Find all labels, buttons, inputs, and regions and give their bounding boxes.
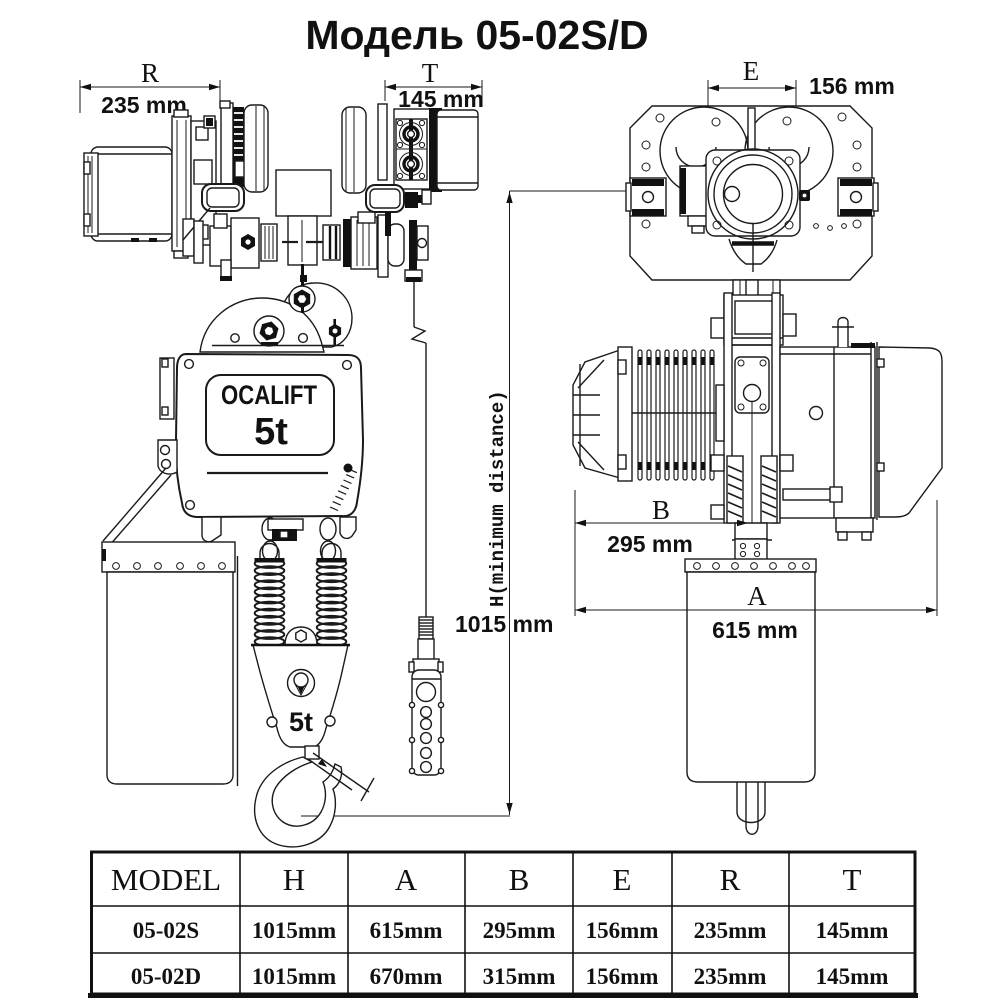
svg-text:1015mm: 1015mm xyxy=(252,964,336,989)
svg-text:295mm: 295mm xyxy=(483,918,556,943)
svg-text:T: T xyxy=(422,58,439,88)
svg-text:A: A xyxy=(747,581,767,611)
svg-text:315mm: 315mm xyxy=(483,964,556,989)
svg-text:Модель 05-02S/D: Модель 05-02S/D xyxy=(305,12,648,58)
svg-text:615 mm: 615 mm xyxy=(712,617,798,643)
svg-text:R: R xyxy=(141,58,159,88)
svg-text:B: B xyxy=(652,495,670,525)
svg-text:145mm: 145mm xyxy=(816,964,889,989)
svg-text:5t: 5t xyxy=(254,411,288,453)
svg-text:H: H xyxy=(283,862,305,897)
svg-text:E: E xyxy=(613,862,632,897)
svg-text:A: A xyxy=(395,862,418,897)
svg-text:235mm: 235mm xyxy=(694,964,767,989)
svg-text:R: R xyxy=(720,862,741,897)
svg-text:OCALIFT: OCALIFT xyxy=(221,380,317,410)
svg-text:05-02D: 05-02D xyxy=(131,964,201,989)
svg-text:B: B xyxy=(509,862,530,897)
svg-text:145mm: 145mm xyxy=(816,918,889,943)
svg-text:MODEL: MODEL xyxy=(111,862,221,897)
svg-text:5t: 5t xyxy=(289,707,313,737)
svg-text:156mm: 156mm xyxy=(586,918,659,943)
svg-text:235mm: 235mm xyxy=(694,918,767,943)
svg-text:295 mm: 295 mm xyxy=(607,531,693,557)
svg-text:156mm: 156mm xyxy=(586,964,659,989)
svg-text:615mm: 615mm xyxy=(370,918,443,943)
svg-text:1015mm: 1015mm xyxy=(252,918,336,943)
svg-text:1015 mm: 1015 mm xyxy=(455,611,553,637)
svg-text:H(minimum distance): H(minimum distance) xyxy=(487,390,509,607)
svg-text:T: T xyxy=(843,862,862,897)
svg-text:156 mm: 156 mm xyxy=(809,73,895,99)
svg-text:E: E xyxy=(743,56,760,86)
svg-text:05-02S: 05-02S xyxy=(133,918,199,943)
svg-text:670mm: 670mm xyxy=(370,964,443,989)
